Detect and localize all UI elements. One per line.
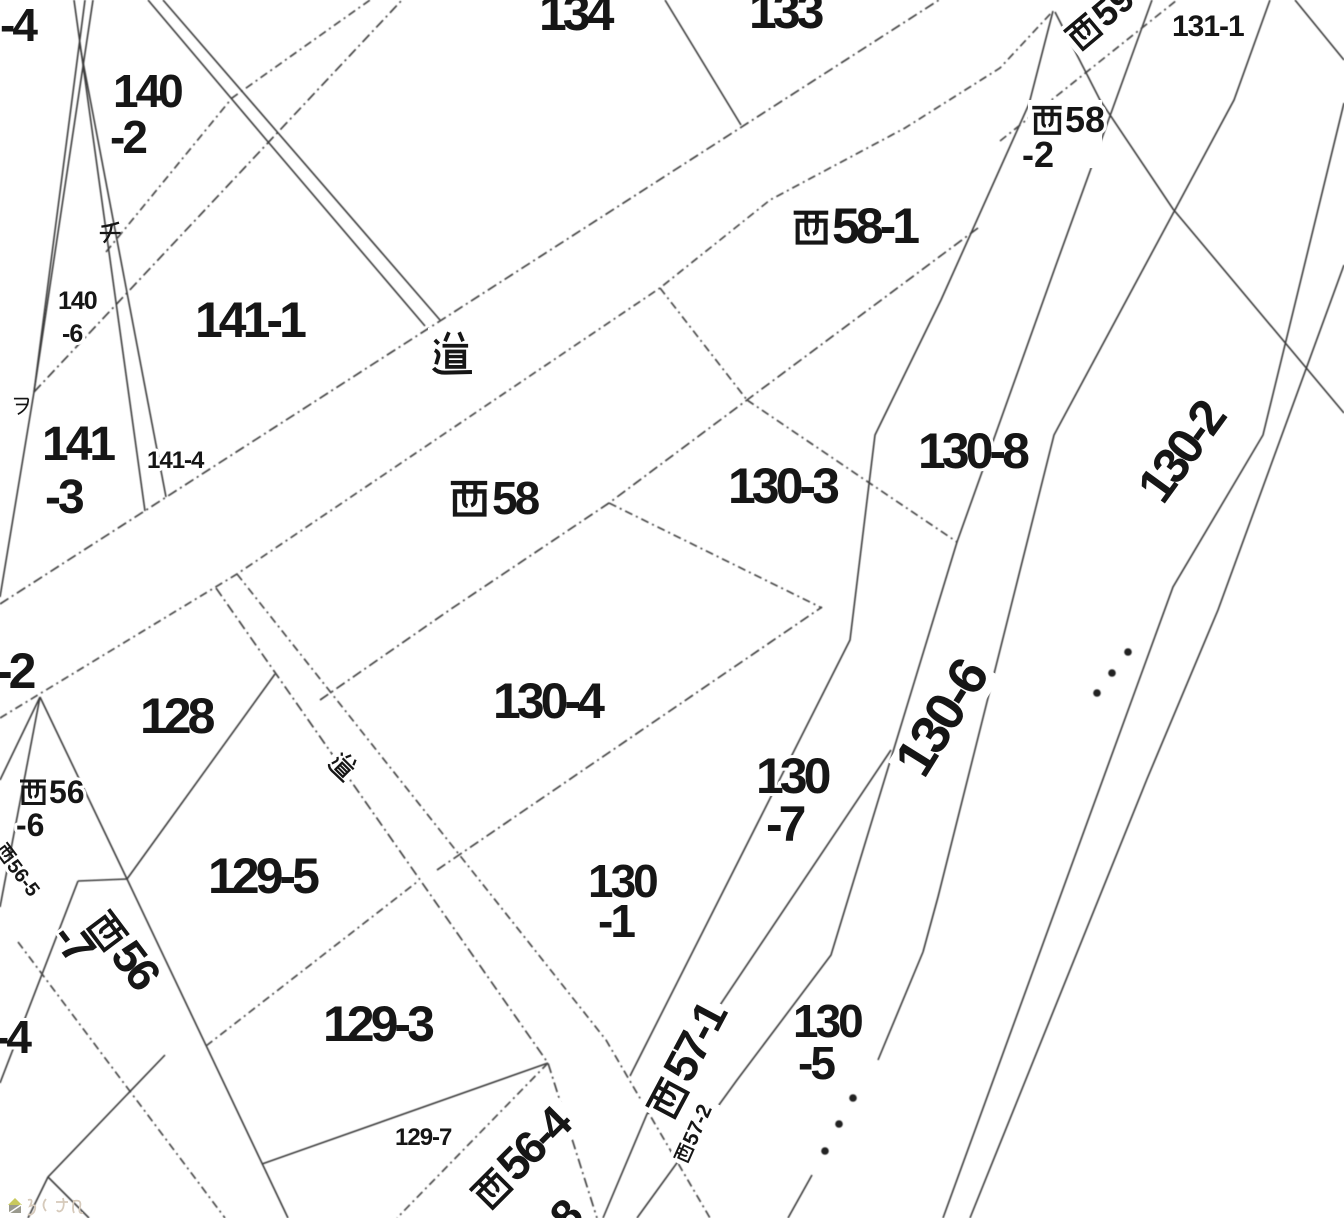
svg-text:129-5: 129-5 <box>208 848 319 904</box>
svg-text:-1: -1 <box>598 895 635 947</box>
svg-text:141-4: 141-4 <box>147 447 205 474</box>
svg-text:129-3: 129-3 <box>323 996 433 1052</box>
svg-text:129-7: 129-7 <box>395 1124 452 1151</box>
svg-text:-2: -2 <box>110 111 146 163</box>
svg-text:140: 140 <box>58 287 97 315</box>
svg-text:131-1: 131-1 <box>1172 10 1244 43</box>
svg-text:58: 58 <box>1065 99 1105 140</box>
svg-text:140: 140 <box>113 65 182 117</box>
svg-text:133: 133 <box>749 0 823 39</box>
svg-text:141-1: 141-1 <box>195 292 306 348</box>
svg-text:-6: -6 <box>62 320 82 348</box>
svg-text:-3: -3 <box>45 471 83 524</box>
svg-text:-6: -6 <box>16 807 44 843</box>
svg-text:58: 58 <box>492 472 540 524</box>
svg-text:130-8: 130-8 <box>918 423 1029 479</box>
svg-text:-5: -5 <box>798 1037 835 1089</box>
svg-text:134: 134 <box>539 0 615 41</box>
svg-text:58-1: 58-1 <box>832 198 919 254</box>
svg-text:-4: -4 <box>0 0 38 51</box>
svg-text:56: 56 <box>49 774 85 810</box>
svg-text:130-4: 130-4 <box>493 673 605 729</box>
svg-text:-4: -4 <box>0 1011 32 1063</box>
svg-text:-7: -7 <box>766 796 805 852</box>
svg-text:128: 128 <box>140 688 215 744</box>
svg-text:-2: -2 <box>0 643 35 699</box>
svg-text:141: 141 <box>42 418 115 471</box>
svg-text:130-3: 130-3 <box>728 458 838 514</box>
svg-text:-2: -2 <box>1022 134 1054 175</box>
